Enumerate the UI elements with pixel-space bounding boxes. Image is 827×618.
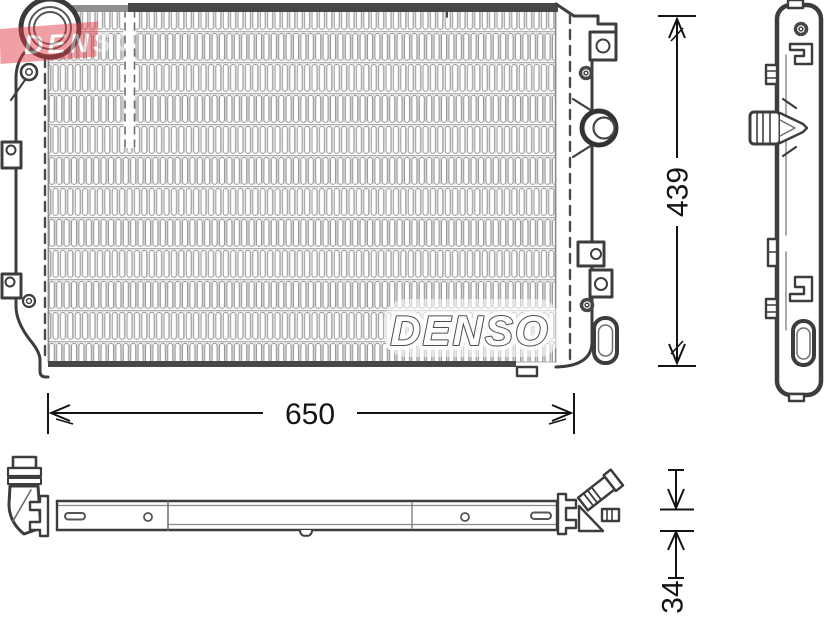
bottom-left-fitting [8, 457, 48, 536]
dimension-depth [660, 470, 694, 578]
tank-bottom-corner [556, 342, 592, 367]
watermark-text: DENSO [23, 26, 140, 60]
brand-logo-group: DENSO DENSO [384, 299, 560, 357]
outlet-pipe [577, 470, 623, 512]
bottom-header-bar [48, 361, 516, 367]
bracket-hole [6, 278, 15, 287]
dimension-height-label: 439 [662, 167, 695, 217]
top-right-step [556, 4, 616, 34]
bar-notch [300, 530, 312, 536]
dimension-depth-label: 34 [657, 580, 690, 613]
bar-hole [144, 513, 152, 521]
bracket-hole [597, 40, 610, 53]
bottom-right-fitting [558, 470, 623, 534]
drain-plug [23, 295, 35, 307]
catalog-product-image: DENSO DENSO DENSO [0, 0, 827, 618]
side-view [750, 0, 821, 401]
bottom-tab [789, 394, 804, 401]
dimension-width-label: 650 [285, 398, 335, 431]
bar-hole [461, 513, 469, 521]
bottom-mount-tab [517, 367, 537, 376]
filler-neck [573, 99, 616, 157]
bottom-bar [57, 501, 557, 536]
bracket-hole [591, 249, 601, 259]
side-bracket [768, 239, 777, 266]
gear-icon [582, 300, 593, 311]
top-header-bar [128, 3, 558, 12]
gear-icon [581, 68, 592, 79]
pipe-gusset [579, 506, 603, 531]
bottom-view [8, 457, 623, 536]
bar-slot [531, 513, 551, 520]
bracket-hole [7, 146, 16, 155]
right-tank [570, 14, 617, 363]
bar-slot [65, 513, 85, 520]
bracket-hole [595, 278, 607, 290]
clamp-flange [558, 494, 576, 534]
filler-cap [594, 118, 615, 139]
top-tab [788, 0, 803, 8]
sensor-fitting [21, 64, 37, 80]
radiator-technical-drawing: DENSO DENSO DENSO [0, 0, 827, 618]
brand-logo: DENSO [390, 307, 549, 354]
side-clamp [766, 299, 777, 318]
side-stub [602, 509, 619, 521]
side-clamp [766, 65, 777, 84]
